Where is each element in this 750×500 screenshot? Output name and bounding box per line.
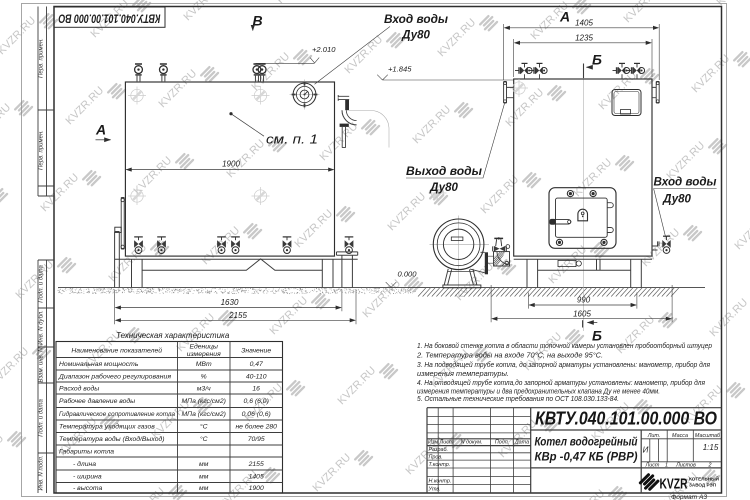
- svg-text:ЗАВОД РЭП: ЗАВОД РЭП: [689, 483, 716, 488]
- svg-text:2: 2: [708, 462, 712, 468]
- svg-text:0.000: 0.000: [398, 270, 418, 279]
- svg-text:3. На подводящей трубе котла,: 3. На подводящей трубе котла, до запорно…: [417, 360, 710, 369]
- svg-text:м3/ч: м3/ч: [197, 385, 211, 392]
- svg-text:МВт: МВт: [196, 361, 212, 368]
- svg-text:Ду80: Ду80: [429, 182, 458, 194]
- svg-text:Б: Б: [592, 328, 602, 344]
- svg-text:Ду80: Ду80: [401, 30, 430, 42]
- svg-text:И: И: [643, 446, 649, 455]
- svg-text:Температура уходящих газов: Температура уходящих газов: [59, 423, 155, 431]
- svg-text:Котел водогрейный: Котел водогрейный: [535, 434, 639, 448]
- svg-text:Подп. и дата: Подп. и дата: [39, 265, 45, 303]
- svg-text:не более 280: не более 280: [235, 423, 277, 431]
- svg-text:Разраб.: Разраб.: [429, 447, 449, 453]
- svg-text:Рабочее давление воды: Рабочее давление воды: [59, 397, 135, 405]
- svg-text:Перв. примен.: Перв. примен.: [39, 130, 45, 170]
- svg-text:- ширина: - ширина: [73, 474, 102, 481]
- svg-text:N докум.: N докум.: [461, 440, 483, 446]
- svg-text:70/95: 70/95: [248, 436, 265, 443]
- svg-text:1:15: 1:15: [703, 443, 719, 452]
- svg-text:Значение: Значение: [241, 348, 271, 355]
- svg-text:+2.010: +2.010: [312, 45, 336, 54]
- svg-text:см. п. 1: см. п. 1: [266, 133, 318, 147]
- svg-text:Дата: Дата: [514, 440, 529, 446]
- svg-text:1405: 1405: [249, 474, 264, 481]
- svg-text:0,06 (0,6): 0,06 (0,6): [242, 411, 271, 418]
- svg-text:МПа (кгс/см2): МПа (кгс/см2): [181, 398, 225, 405]
- svg-text:Габариты котла: Габариты котла: [59, 447, 114, 455]
- svg-text:1405: 1405: [575, 19, 593, 28]
- svg-text:Н.контр.: Н.контр.: [429, 479, 452, 485]
- svg-text:Б: Б: [592, 52, 602, 68]
- svg-text:- длина: - длина: [73, 460, 96, 468]
- svg-text:мм: мм: [199, 474, 209, 481]
- svg-text:1. На боковой стенке котла в: 1. На боковой стенке котла в области топ…: [417, 341, 712, 350]
- svg-text:1605: 1605: [573, 309, 591, 318]
- svg-text:Ду80: Ду80: [662, 194, 691, 206]
- svg-text:КОТЕЛЬНЫЙ: КОТЕЛЬНЫЙ: [689, 475, 719, 482]
- svg-text:Взам. инв. N: Взам. инв. N: [39, 347, 45, 383]
- svg-text:°С: °С: [200, 435, 208, 443]
- svg-text:- высота: - высота: [73, 485, 102, 492]
- svg-text:МПа (кгс/см2): МПа (кгс/см2): [181, 411, 225, 418]
- svg-text:40-110: 40-110: [246, 373, 267, 380]
- svg-text:0,47: 0,47: [250, 361, 263, 368]
- svg-text:Лист: Лист: [645, 462, 660, 468]
- svg-text:Пров.: Пров.: [429, 454, 443, 460]
- svg-text:KVZR: KVZR: [660, 477, 688, 493]
- svg-text:А: А: [95, 122, 106, 138]
- svg-text:1: 1: [665, 462, 668, 468]
- svg-text:Вход воды: Вход воды: [654, 177, 717, 189]
- svg-text:Инв. N подл.: Инв. N подл.: [39, 455, 45, 490]
- svg-text:Подп. и дата: Подп. и дата: [39, 399, 45, 437]
- svg-text:Расход воды: Расход воды: [59, 384, 99, 392]
- svg-text:В: В: [253, 13, 263, 29]
- svg-text:Утв.: Утв.: [428, 487, 441, 493]
- svg-text:+1.845: +1.845: [388, 65, 412, 74]
- svg-text:Диапазон рабочего регулировани: Диапазон рабочего регулирования: [58, 372, 171, 380]
- svg-text:0,6 (6,0): 0,6 (6,0): [244, 398, 269, 405]
- svg-text:2. Температура воды на входе: 2. Температура воды на входе 70°С, на вы…: [416, 351, 603, 360]
- svg-text:1900: 1900: [249, 485, 264, 492]
- svg-text:Перв. примен.: Перв. примен.: [39, 38, 45, 78]
- svg-text:Наименование показателей: Наименование показателей: [71, 347, 162, 355]
- svg-text:Масса: Масса: [672, 433, 688, 439]
- svg-text:А: А: [559, 9, 570, 25]
- svg-text:16: 16: [252, 385, 260, 392]
- svg-text:Лист: Лист: [439, 440, 454, 446]
- svg-text:2155: 2155: [248, 461, 264, 468]
- svg-text:5. Остальные технические треб: 5. Остальные технические требования по О…: [417, 394, 619, 403]
- svg-text:Инв. N дубл.: Инв. N дубл.: [39, 310, 45, 345]
- svg-text:Номинальная мощность: Номинальная мощность: [59, 361, 139, 368]
- svg-text:КВТУ.040.101.00.000 ВО: КВТУ.040.101.00.000 ВО: [535, 409, 717, 429]
- svg-text:Температура воды (Вход/Выход): Температура воды (Вход/Выход): [59, 435, 165, 443]
- svg-text:мм: мм: [199, 461, 209, 468]
- svg-text:Изм: Изм: [428, 440, 438, 446]
- svg-text:%: %: [201, 373, 207, 380]
- svg-text:Едeницы: Едeницы: [189, 343, 217, 351]
- svg-text:Подп.: Подп.: [495, 440, 509, 446]
- svg-text:2155: 2155: [228, 311, 247, 320]
- svg-text:Гидравлическое сопротивление к: Гидравлическое сопротивление котла: [59, 410, 175, 418]
- svg-text:Формат А3: Формат А3: [671, 494, 707, 500]
- svg-text:КВр -0,47 КБ (РВР): КВр -0,47 КБ (РВР): [535, 450, 638, 464]
- svg-text:Листов: Листов: [675, 462, 696, 468]
- svg-text:КВТУ.040.101.00.000 ВО: КВТУ.040.101.00.000 ВО: [58, 11, 160, 23]
- svg-text:Лит.: Лит.: [647, 433, 661, 439]
- svg-text:Техническая характеристика: Техническая характеристика: [116, 331, 230, 340]
- svg-text:измерения: измерения: [187, 351, 221, 358]
- svg-text:990: 990: [577, 296, 591, 305]
- svg-text:Вход воды: Вход воды: [384, 14, 448, 26]
- svg-text:Т.контр.: Т.контр.: [429, 462, 451, 468]
- svg-text:Выход воды: Выход воды: [406, 166, 482, 178]
- svg-text:1630: 1630: [221, 298, 239, 307]
- svg-text:1900: 1900: [222, 160, 240, 169]
- svg-text:Масштаб: Масштаб: [695, 433, 721, 439]
- svg-text:°С: °С: [200, 423, 208, 431]
- svg-text:1235: 1235: [575, 34, 593, 43]
- svg-text:мм: мм: [199, 485, 209, 492]
